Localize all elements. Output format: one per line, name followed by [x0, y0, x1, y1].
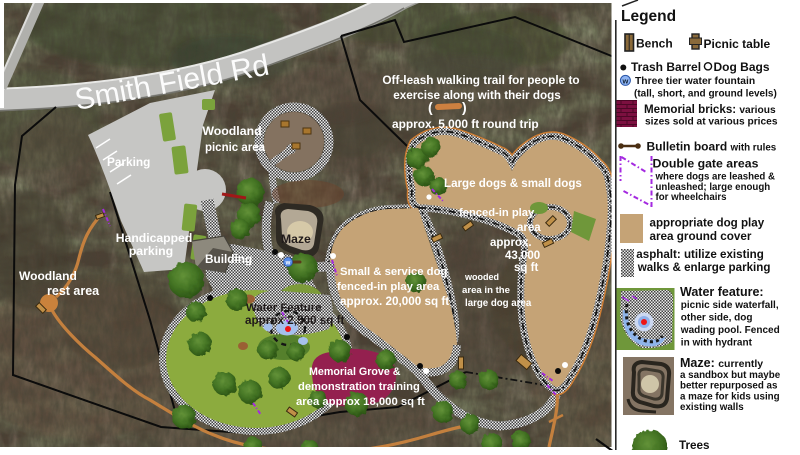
svg-text:better repurposed as: better repurposed as: [680, 381, 778, 392]
svg-text:for wheelchairs: for wheelchairs: [656, 192, 727, 203]
svg-text:asphalt: utilize existing: asphalt: utilize existing: [636, 248, 764, 261]
svg-text:a sandbox but maybe: a sandbox but maybe: [680, 370, 781, 381]
svg-text:Woodland: Woodland: [19, 269, 77, 283]
svg-text:Double gate areas: Double gate areas: [653, 157, 759, 171]
svg-text:Picnic table: Picnic table: [704, 37, 771, 51]
svg-text:Water feature:: Water feature:: [680, 285, 764, 299]
svg-text:Off-leash walking trail for pe: Off-leash walking trail for people to: [382, 73, 579, 87]
svg-text:Handicapped: Handicapped: [116, 231, 193, 245]
svg-text:43,000: 43,000: [505, 250, 540, 262]
svg-text:existing walls: existing walls: [680, 402, 744, 413]
svg-text:area in the: area in the: [462, 285, 510, 296]
svg-text:picnic side waterfall,: picnic side waterfall,: [681, 300, 779, 311]
svg-text:area ground cover: area ground cover: [650, 230, 752, 243]
svg-text:sq ft: sq ft: [514, 262, 538, 274]
svg-text:Memorial bricks: various: Memorial bricks: various: [644, 103, 776, 116]
svg-text:Bulletin board with rules: Bulletin board with rules: [647, 140, 777, 154]
svg-text:approx. 20,000 sq ft: approx. 20,000 sq ft: [340, 295, 449, 308]
svg-text:Trash Barrel: Trash Barrel: [631, 60, 701, 74]
svg-text:approx 2,500 sq ft: approx 2,500 sq ft: [245, 314, 344, 327]
svg-text:Legend: Legend: [621, 8, 676, 25]
svg-text:Small & service dog: Small & service dog: [340, 266, 447, 278]
svg-text:appropriate dog play: appropriate dog play: [650, 217, 765, 230]
svg-text:Dog Bags: Dog Bags: [714, 60, 770, 74]
svg-text:w: w: [621, 76, 628, 85]
svg-text:wooded: wooded: [464, 272, 499, 282]
svg-text:picnic area: picnic area: [205, 142, 266, 154]
svg-text:Parking: Parking: [107, 155, 150, 169]
svg-text:Woodland: Woodland: [202, 124, 261, 138]
svg-text:demonstration training: demonstration training: [298, 381, 420, 393]
svg-text:w: w: [285, 261, 291, 267]
svg-text:large dog area: large dog area: [465, 298, 532, 309]
svg-text:fenced-in play area: fenced-in play area: [337, 281, 440, 293]
svg-text:approx. 5,000 ft round trip: approx. 5,000 ft round trip: [392, 117, 539, 131]
svg-text:in with hydrant: in with hydrant: [681, 338, 753, 349]
svg-text:Water Feature: Water Feature: [246, 302, 322, 314]
svg-text:(tall, short, and ground level: (tall, short, and ground levels): [634, 89, 777, 100]
svg-text:a maze for kids using: a maze for kids using: [680, 391, 780, 402]
svg-text:area approx 18,000 sq ft: area approx 18,000 sq ft: [296, 396, 425, 408]
svg-text:rest area: rest area: [47, 284, 100, 298]
svg-text:Maze: currently: Maze: currently: [680, 356, 763, 370]
svg-text:walks & enlarge parking: walks & enlarge parking: [637, 261, 771, 274]
svg-text:parking: parking: [129, 244, 173, 258]
svg-text:Trees: Trees: [679, 439, 710, 450]
svg-text:Three tier water fountain: Three tier water fountain: [635, 76, 755, 87]
svg-text:exercise along with their dogs: exercise along with their dogs: [393, 89, 561, 102]
svg-text:sizes sold at various prices: sizes sold at various prices: [645, 117, 778, 128]
svg-text:Maze: Maze: [281, 232, 311, 246]
svg-text:Bench: Bench: [636, 37, 673, 51]
svg-text:Memorial Grove &: Memorial Grove &: [309, 366, 401, 378]
svg-text:approx.: approx.: [490, 237, 532, 249]
svg-text:wading pool. Fenced: wading pool. Fenced: [680, 325, 780, 336]
svg-text:area: area: [517, 222, 541, 234]
svg-text:other side, dog: other side, dog: [681, 313, 753, 324]
svg-text:Building: Building: [205, 252, 252, 266]
svg-text:Large dogs & small dogs: Large dogs & small dogs: [444, 177, 582, 190]
svg-text:fenced-in play: fenced-in play: [459, 207, 535, 219]
